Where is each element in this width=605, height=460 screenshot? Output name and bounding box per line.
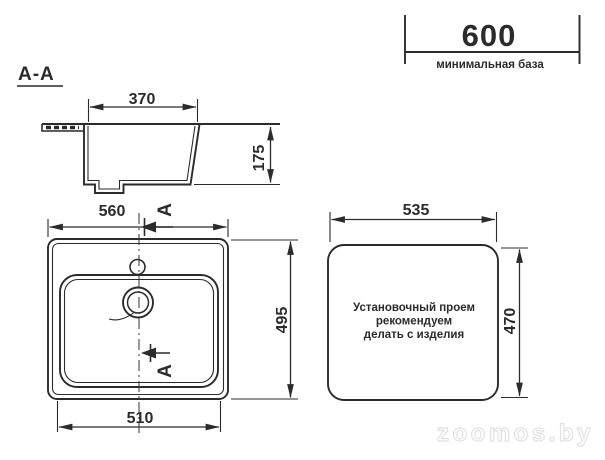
- cutout-note-line3: делать с изделия: [364, 329, 464, 341]
- sink-technical-drawing: 600 минимальная база A-A 370 175: [0, 0, 605, 460]
- section-letter-top: A: [155, 203, 176, 217]
- dim-600-note: минимальная база: [436, 59, 544, 71]
- dim-600-value: 600: [462, 18, 517, 53]
- dim-175-value: 175: [251, 145, 268, 172]
- dim-535-value: 535: [403, 202, 430, 219]
- sink-rim-inner-edge: [53, 244, 224, 395]
- plan-view: 560 A A 510 495: [48, 203, 298, 433]
- drawing-canvas: 600 минимальная база A-A 370 175: [0, 0, 605, 460]
- cross-section-view: 370 175: [42, 91, 280, 193]
- dim-495-value: 495: [274, 307, 291, 334]
- cutout-note: Установочный проем рекомендуем делать с …: [353, 302, 475, 341]
- bowl-profile-inner: [88, 126, 195, 189]
- faucet-hole: [130, 260, 145, 275]
- watermark-text: zoomos.by: [437, 420, 594, 447]
- cutout-note-line2: рекомендуем: [376, 316, 452, 328]
- bowl-profile-outer: [84, 124, 200, 193]
- dim-560-value: 560: [99, 203, 126, 220]
- drain-inner: [128, 292, 149, 313]
- base-width-dimension: 600 минимальная база: [405, 15, 580, 71]
- section-letter-bottom: A: [155, 364, 176, 378]
- section-marker-bottom: A: [141, 344, 176, 378]
- section-marker-top: A: [141, 203, 176, 236]
- sink-outer-edge: [48, 239, 228, 399]
- dim-510-value: 510: [127, 410, 154, 427]
- cutout-view: 535 470 Установочный проем рекомендуем д…: [328, 202, 528, 400]
- dim-470-value: 470: [502, 308, 519, 335]
- dim-370-value: 370: [129, 91, 156, 108]
- cutout-note-line1: Установочный проем: [353, 302, 475, 314]
- section-label-text: A-A: [18, 64, 55, 85]
- section-label: A-A: [17, 64, 63, 86]
